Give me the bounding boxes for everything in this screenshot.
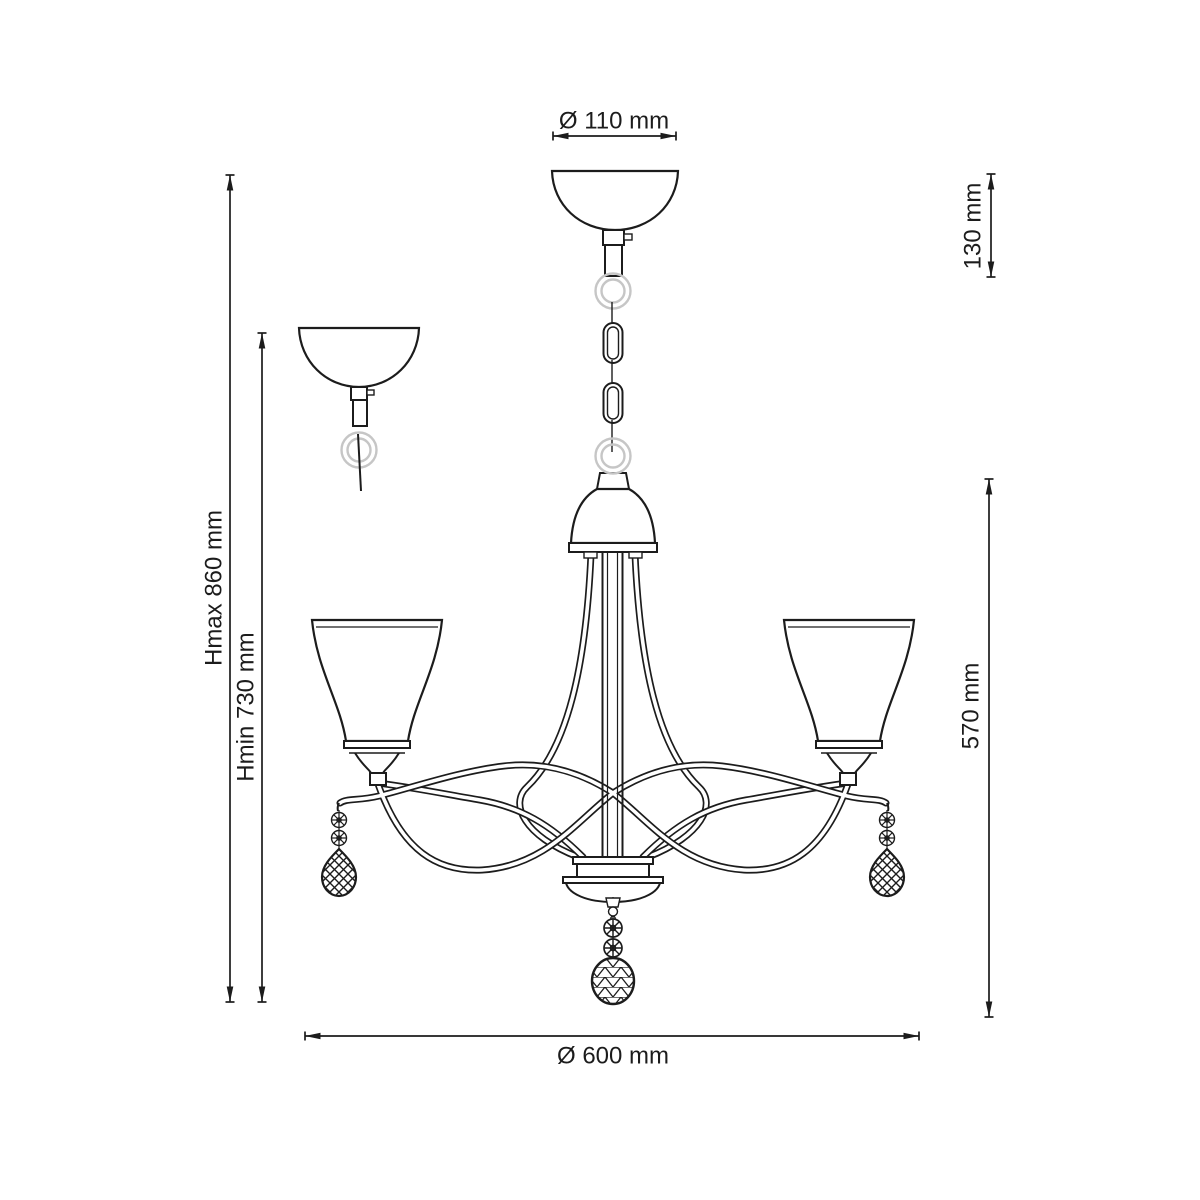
faceted-crystal-ball <box>592 958 634 1004</box>
dim-label-fixture-height: 570 mm <box>958 663 985 750</box>
dim-hmin: Hmin 730 mm <box>233 333 267 1002</box>
chandelier-technical-drawing: Ø 110 mm 130 mm Hmax 860 mm Hmin 730 mm … <box>0 0 1200 1200</box>
arm-curves <box>340 554 886 870</box>
dim-canopy-height: 130 mm <box>960 174 996 277</box>
dim-label-hmin: Hmin 730 mm <box>233 632 260 781</box>
suspension-chain <box>596 274 631 474</box>
dim-label-fixture-diameter: Ø 600 mm <box>557 1043 669 1070</box>
dim-hmax: Hmax 860 mm <box>201 175 235 1002</box>
bottom-crystal-pendant <box>592 897 634 1004</box>
chain-ring-top <box>596 274 631 309</box>
bottom-hub <box>563 857 663 902</box>
ceiling-canopy <box>552 171 678 276</box>
left-lamp-holder <box>370 773 386 785</box>
dim-fixture-diameter: Ø 600 mm <box>305 1032 919 1070</box>
dim-canopy-diameter: Ø 110 mm <box>553 108 676 141</box>
center-column <box>603 552 623 858</box>
left-shade <box>312 620 442 785</box>
dim-fixture-height: 570 mm <box>958 479 994 1017</box>
right-crystal-pendant <box>870 803 904 896</box>
right-lamp-holder <box>840 773 856 785</box>
dim-label-hmax: Hmax 860 mm <box>201 510 228 666</box>
left-crystal-pendant <box>322 803 356 896</box>
bell-body <box>569 473 657 558</box>
right-shade <box>784 620 914 785</box>
canopy-detail <box>299 328 419 491</box>
chain-ring-bottom <box>596 439 631 474</box>
technical-drawing-canvas: Ø 110 mm 130 mm Hmax 860 mm Hmin 730 mm … <box>0 0 1200 1200</box>
dim-label-canopy-height: 130 mm <box>960 183 987 270</box>
dim-label-canopy-diameter: Ø 110 mm <box>559 108 669 135</box>
